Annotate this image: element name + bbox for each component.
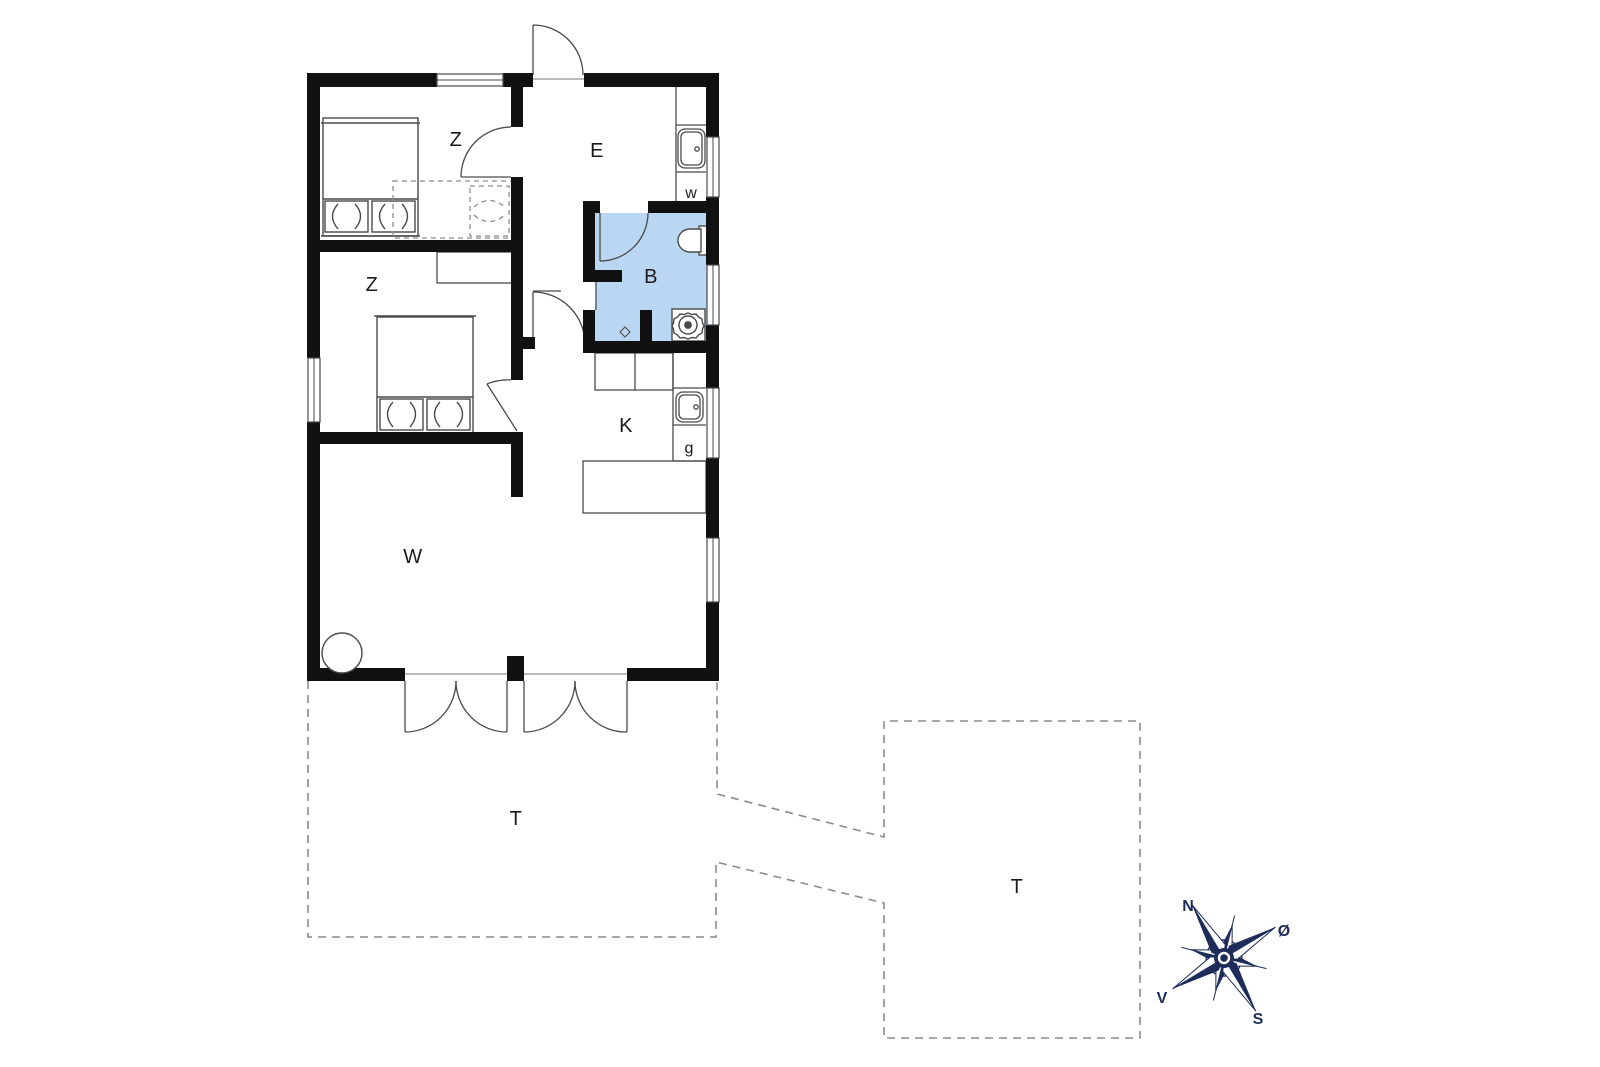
room-label-bedroom-1: Z [450, 129, 463, 151]
room-label-bedroom-2: Z [366, 274, 379, 296]
room-label-bathroom: B [644, 266, 658, 288]
room-label-entry: E [590, 140, 604, 162]
floor-plan-page: Z Z E B K W T T w g [0, 0, 1600, 1067]
room-label-living-room: W [403, 546, 422, 568]
washbasin-drain [685, 322, 691, 328]
compass-label-west: V [1157, 990, 1168, 1007]
appliance-label-washing-machine: w [684, 185, 697, 202]
window-entry-right [707, 137, 719, 197]
wood-stove-icon [322, 633, 362, 673]
window-kitchen-right [707, 388, 719, 458]
room-label-terrace-main: T [510, 808, 523, 830]
room-label-terrace-secondary: T [1011, 876, 1024, 898]
floor-plan-canvas: Z Z E B K W T T w g [0, 0, 1600, 1067]
compass-label-north: N [1182, 898, 1194, 915]
compass-label-east: Ø [1278, 923, 1290, 940]
window-bathroom-right [707, 265, 719, 325]
room-label-kitchen: K [619, 415, 633, 437]
window-bedroom-2-left [308, 358, 320, 422]
window-living-room-right [707, 538, 719, 602]
canvas-background [0, 0, 1600, 1067]
compass-label-south: S [1253, 1011, 1264, 1028]
toilet-bowl-icon [678, 229, 701, 252]
window-bedroom-1-top [437, 74, 503, 86]
appliance-label-stove: g [685, 440, 694, 457]
